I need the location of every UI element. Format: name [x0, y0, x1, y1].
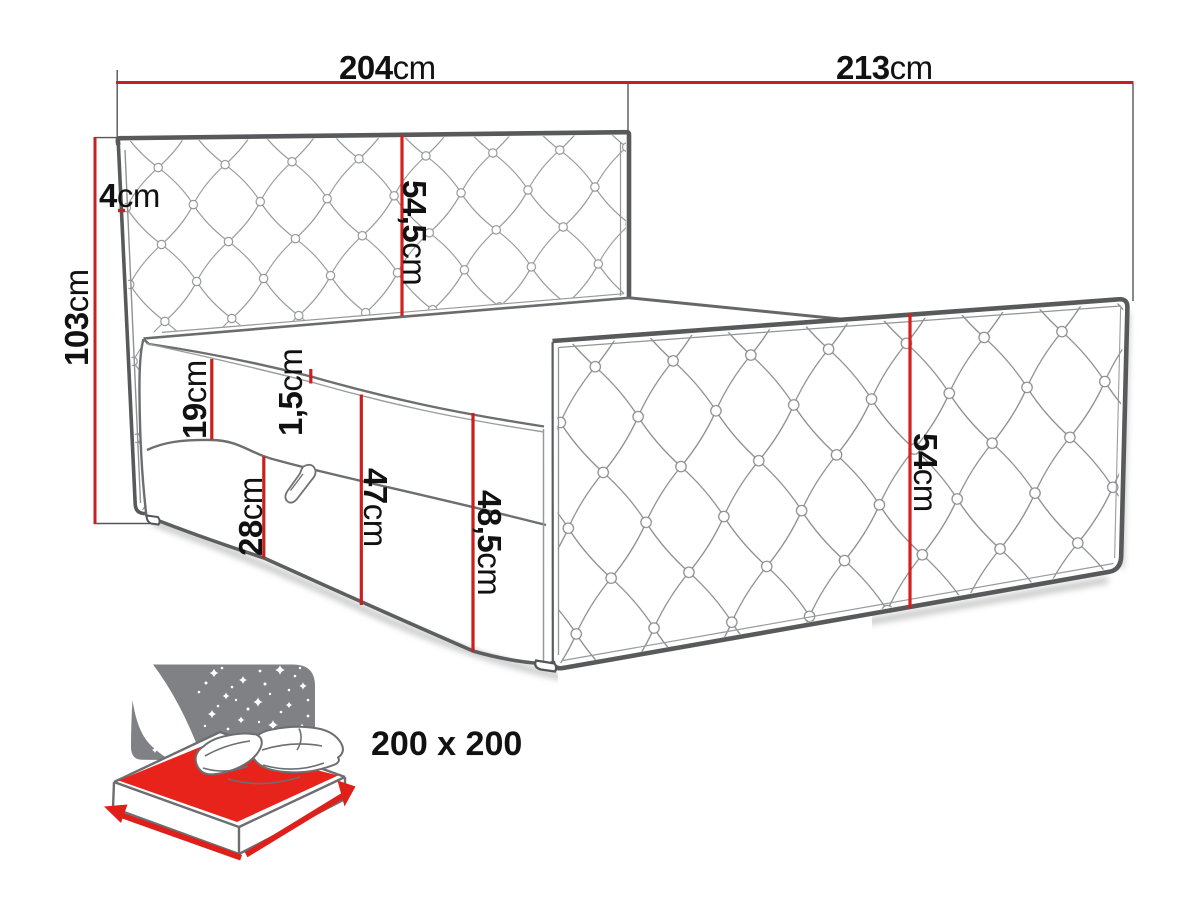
svg-text:4cm: 4cm: [99, 177, 160, 214]
svg-text:48,5cm: 48,5cm: [471, 490, 508, 595]
svg-text:200 x 200: 200 x 200: [371, 725, 522, 763]
svg-text:204cm: 204cm: [339, 49, 436, 86]
svg-text:54cm: 54cm: [907, 433, 944, 512]
svg-text:47cm: 47cm: [357, 468, 394, 547]
svg-text:54,5cm: 54,5cm: [396, 180, 433, 285]
svg-text:28cm: 28cm: [232, 477, 269, 556]
svg-text:213cm: 213cm: [836, 49, 933, 86]
svg-text:1,5cm: 1,5cm: [272, 349, 309, 436]
svg-text:19cm: 19cm: [176, 360, 213, 439]
svg-text:103cm: 103cm: [58, 269, 95, 366]
